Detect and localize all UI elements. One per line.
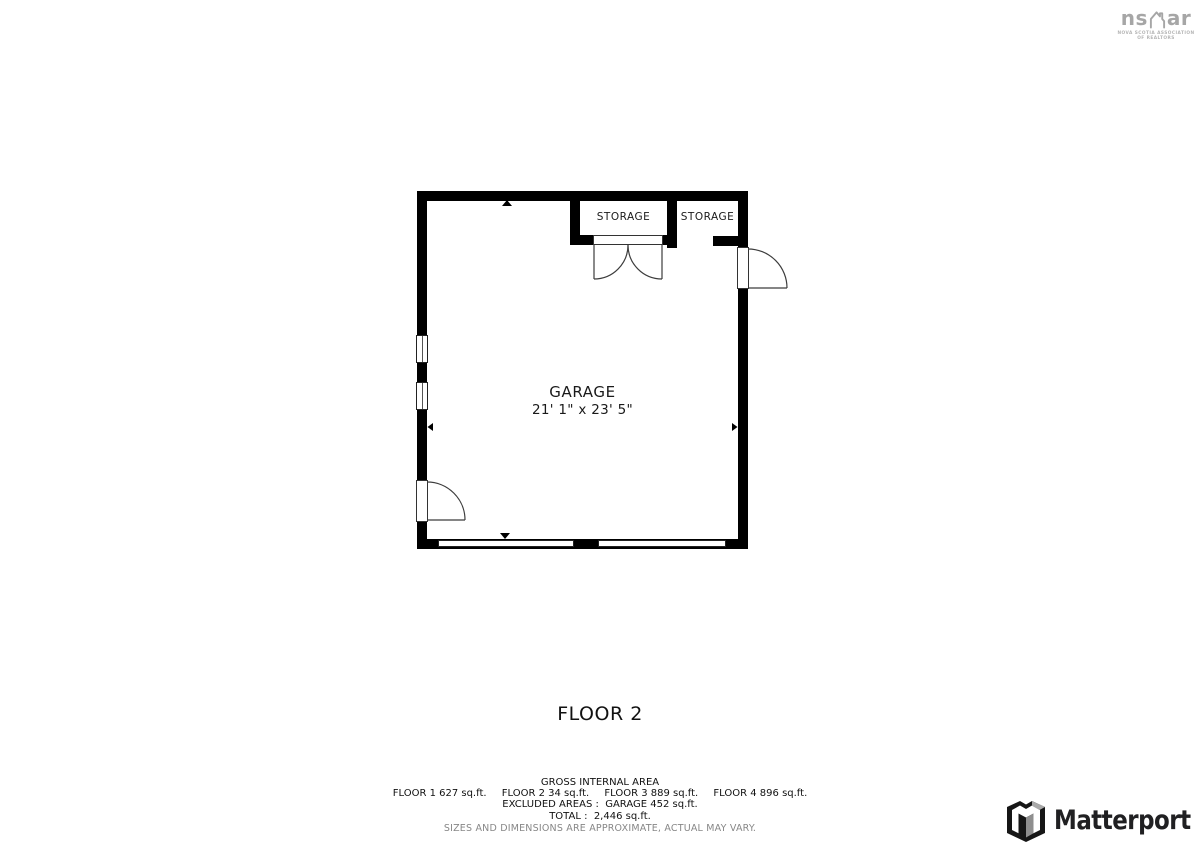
door-frame-right-wall [737, 247, 749, 289]
nsar-logo: ns ar NOVA SCOTIA ASSOCIATION OF REALTOR… [1116, 6, 1196, 41]
floor-areas-row: FLOOR 1 627 sq.ft. FLOOR 2 34 sq.ft. FLO… [0, 788, 1200, 799]
storage-right-wall-south [713, 236, 748, 246]
door-arc [427, 482, 465, 520]
floor-label: FLOOR 2 [0, 703, 1200, 725]
garage-room-name: GARAGE [417, 383, 748, 401]
storage-left-wall-south-left [570, 235, 594, 245]
door-arc [748, 249, 787, 288]
storage-left-wall-south-right [662, 235, 677, 245]
floor-area-item: FLOOR 2 34 sq.ft. [502, 788, 589, 799]
nsar-caption-line2: OF REALTORS [1117, 36, 1194, 41]
matterport-mark-icon [1006, 800, 1046, 842]
nsar-wordmark-ar: ar [1167, 6, 1191, 30]
garage-door [598, 540, 726, 547]
page: ns ar NOVA SCOTIA ASSOCIATION OF REALTOR… [0, 0, 1200, 848]
gross-internal-area-title: GROSS INTERNAL AREA [0, 777, 1200, 788]
wall-top [417, 191, 748, 201]
door-frame-storage [593, 235, 663, 245]
floor-plan: STORAGE STORAGE GARAGE 21' 1" x 23' 5" [417, 191, 748, 549]
room-label-garage: GARAGE 21' 1" x 23' 5" [417, 383, 748, 418]
floor-area-item: FLOOR 4 896 sq.ft. [713, 788, 807, 799]
nsar-caption: NOVA SCOTIA ASSOCIATION OF REALTORS [1117, 31, 1194, 41]
window [416, 335, 428, 363]
floor-area-item: FLOOR 1 627 sq.ft. [393, 788, 487, 799]
matterport-wordmark: Matterport [1054, 805, 1191, 836]
dimension-arrow-right-icon [732, 423, 738, 431]
floor-area-item: FLOOR 3 889 sq.ft. [604, 788, 698, 799]
dimension-arrow-left-icon [428, 423, 434, 431]
house-roof-icon [1149, 9, 1166, 29]
garage-door [438, 540, 574, 547]
garage-room-dimensions: 21' 1" x 23' 5" [417, 402, 748, 418]
matterport-logo: Matterport [1006, 799, 1200, 842]
door-arc [594, 245, 628, 279]
door-arc [628, 245, 662, 279]
room-label-storage-left: STORAGE [580, 211, 667, 223]
door-frame-left-wall [416, 480, 428, 522]
nsar-wordmark-ns: ns [1121, 6, 1148, 30]
nsar-wordmark: ns ar [1121, 6, 1192, 30]
room-label-storage-right: STORAGE [677, 211, 738, 223]
